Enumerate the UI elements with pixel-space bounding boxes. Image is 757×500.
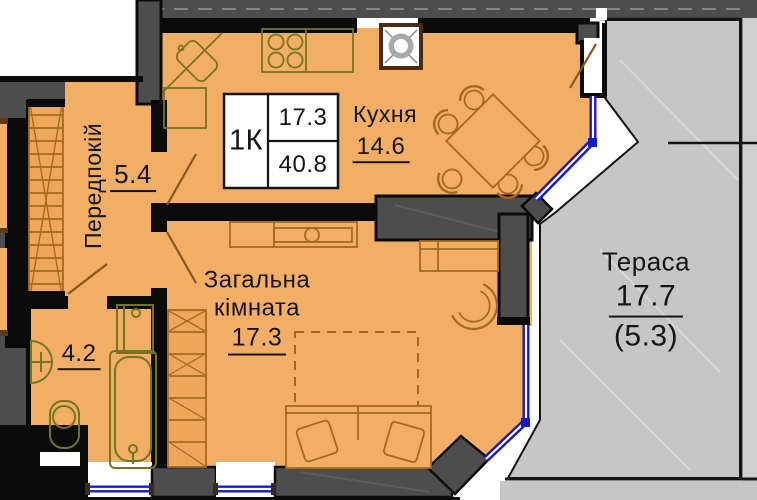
hallway-label: Передпокій bbox=[80, 123, 106, 249]
terrace-area: 17.7 bbox=[609, 279, 683, 318]
living-right-wall bbox=[499, 214, 528, 322]
kitchen-living-wall bbox=[151, 203, 390, 221]
living-right-wall-cap bbox=[497, 317, 530, 325]
hallway-area: 5.4 bbox=[110, 160, 156, 190]
kitchen-left-wall bbox=[137, 0, 161, 104]
neighbor-divider bbox=[0, 228, 8, 233]
hallway-top-line bbox=[0, 76, 143, 82]
neighbor-divider bbox=[0, 330, 8, 336]
unit-room-area: 17.3 bbox=[279, 104, 328, 132]
terrace-door-opening bbox=[584, 38, 602, 94]
living-label: Загальна кімната bbox=[177, 267, 337, 322]
unit-type: 1К bbox=[229, 124, 263, 157]
left-wall-black-section bbox=[5, 118, 28, 348]
wall-niche bbox=[40, 452, 80, 466]
living-label-block: Загальна кімната 17.3 bbox=[177, 267, 337, 356]
bathroom-area: 4.2 bbox=[58, 340, 101, 368]
terrace-door-gap bbox=[596, 8, 607, 20]
sofa bbox=[286, 406, 431, 468]
neighbor-floor-sliver bbox=[0, 248, 7, 333]
floor-plan: Передпокій 5.4 Кухня 14.6 Загальна кімна… bbox=[0, 0, 757, 500]
hall-living-wall-pier bbox=[151, 203, 167, 232]
kitchen-top-wall bbox=[150, 18, 357, 33]
terrace-label-block: Тераса 17.7 (5.3) bbox=[602, 248, 690, 355]
terrace-lower-strip bbox=[500, 481, 757, 500]
terrace-neighbor-right bbox=[743, 18, 757, 500]
terrace-reduced-area: (5.3) bbox=[614, 320, 678, 355]
living-area: 17.3 bbox=[228, 324, 287, 356]
bottom-wall-pier bbox=[152, 467, 216, 497]
neighbor-floor-sliver bbox=[0, 124, 7, 230]
vent-shaft bbox=[381, 25, 421, 68]
door-jamb bbox=[602, 23, 607, 98]
hallway-wardrobe bbox=[27, 99, 65, 299]
kitchen-area: 14.6 bbox=[353, 133, 410, 161]
unit-total-area: 40.8 bbox=[279, 151, 328, 179]
terrace-label: Тераса bbox=[602, 248, 690, 278]
kitchen-label: Кухня bbox=[353, 101, 417, 127]
neighbor-divider bbox=[0, 118, 8, 124]
kitchen-top-wall bbox=[418, 18, 590, 33]
window-opening bbox=[216, 462, 275, 500]
